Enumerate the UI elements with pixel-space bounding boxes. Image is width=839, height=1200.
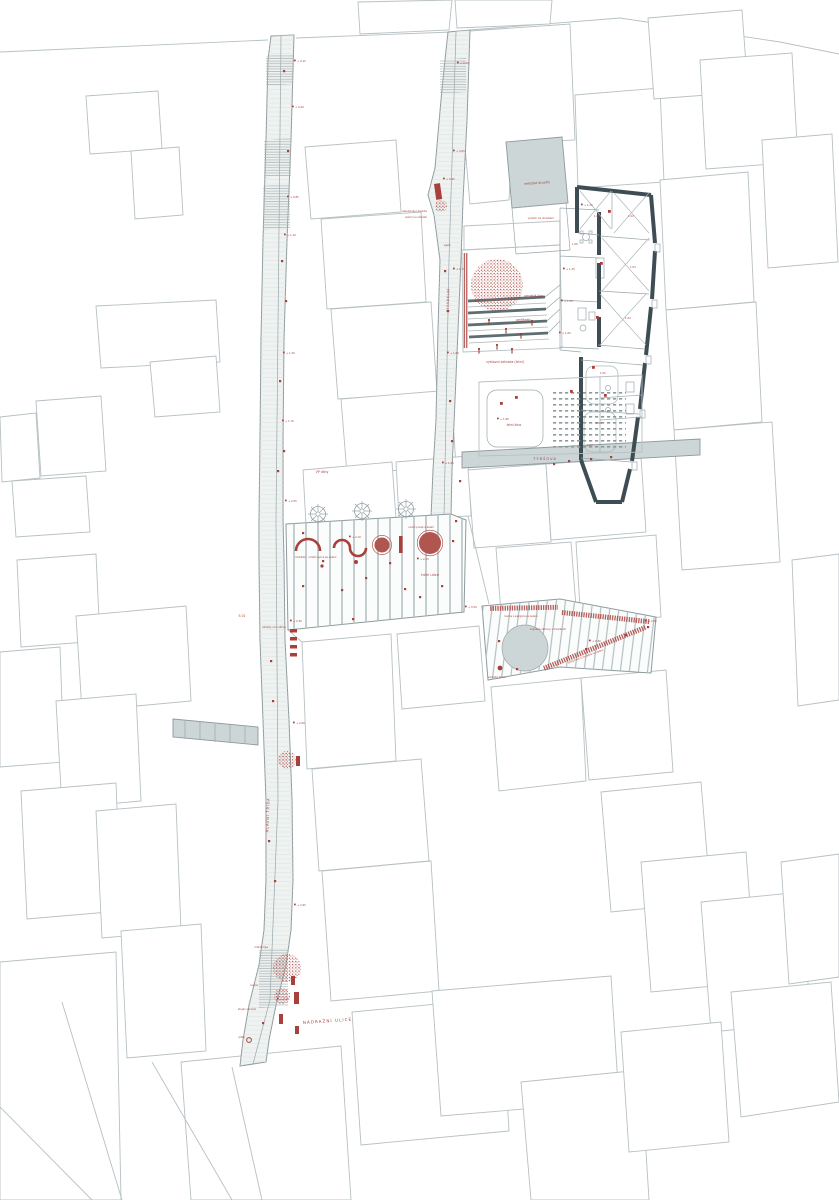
elev-marker: + 1,10: [287, 233, 296, 237]
elev-marker: + 0,65: [456, 149, 465, 153]
elev-marker: + 2,30: [293, 619, 302, 623]
elev-marker: + 0,95: [446, 177, 455, 181]
behind-theatre-label: prostor za divadlem: [528, 216, 554, 220]
elev-marker: + 2,15: [420, 557, 429, 561]
courtyard: [479, 375, 642, 456]
elev-marker: + 1,80: [500, 417, 509, 421]
site-plan-sheet: městské divadlo prostor za divadlem záso…: [0, 0, 839, 1200]
theatre-building: [506, 137, 568, 208]
elev-marker: + 0,15: [297, 59, 306, 63]
room-tag: 1.02: [628, 214, 634, 218]
elev-marker: + 0,50: [468, 605, 477, 609]
garden-rows: [462, 245, 562, 354]
elev-marker: + 2,95: [297, 903, 306, 907]
elev-marker: + 1,70: [285, 419, 294, 423]
elev-marker: + 1,15: [456, 267, 465, 271]
elev-marker: + 0,20: [460, 61, 469, 65]
elev-marker: + 2,40: [592, 639, 601, 643]
elev-marker: + 2,60: [296, 721, 305, 725]
room-tag: 1.08: [572, 242, 578, 246]
vp-label: VP dílny: [316, 470, 329, 474]
entry-label: vjezd: [444, 243, 451, 247]
summer-cinema-label: letní kino: [507, 423, 522, 427]
elev-marker: + 1,65: [562, 331, 571, 335]
station-street-label: NÁDRAŽNÍ ULICE: [303, 1017, 353, 1025]
room-tag: 1.01: [594, 214, 600, 218]
mature-tree-label: vzrostlý strom: [488, 675, 507, 679]
bike-rack-label: stojan na kola: [238, 1007, 257, 1011]
elev-marker: + 1,35: [566, 267, 575, 271]
site-plan-drawing: městské divadlo prostor za divadlem záso…: [0, 0, 839, 1200]
elev-marker: + 1,25: [584, 203, 593, 207]
raised-beds-label: zvýšené záhony s trvalkami: [530, 627, 566, 631]
market-street-label: tržní ulice: [421, 573, 439, 577]
plaza-furniture-label: mobiliář – vlnité lavice se zelení: [295, 555, 337, 559]
elev-marker: + 0,85: [290, 195, 299, 199]
planters-label: nádoby na květiny: [262, 625, 287, 629]
side-street-name: DIVADELNÍ: [445, 288, 451, 312]
elev-marker: + 2,05: [288, 499, 297, 503]
elev-marker: + 2,55: [648, 619, 657, 623]
pergola-bench-label: lavice s pergolou a zelení: [505, 614, 538, 618]
water-feature-label: vodní prvek a zeleň: [408, 525, 434, 529]
elev-marker: + 1,50: [564, 299, 573, 303]
elev-marker: + 0,40: [295, 105, 304, 109]
bench-label: lavice: [250, 983, 258, 987]
elev-marker: + 1,95: [445, 461, 454, 465]
tyrsova-label: TYRŠOVA: [532, 456, 557, 461]
linden-tree-crown: [471, 259, 523, 311]
elev-marker: + 1,60: [450, 351, 459, 355]
fountain-label: pítko: [239, 1035, 246, 1039]
s01-label: S 01: [238, 614, 245, 618]
room-tag: 1.04: [625, 316, 631, 320]
plaza-layer: [286, 499, 466, 630]
exhibition-garden-label: výstavní zahrada (letní): [486, 360, 524, 364]
room-tag: 1.03: [630, 265, 636, 269]
room-tag: 1.07: [587, 443, 593, 447]
supply-note-2: vjezd na náměstí: [405, 215, 427, 219]
young-linden-label: mladá lípa: [254, 945, 268, 949]
elev-marker: + 2,10: [352, 535, 361, 539]
elev-marker: + 3,20: [280, 997, 289, 1001]
linden-label: vzrostlá lípa: [524, 294, 543, 298]
market-tree-canopy: [502, 625, 548, 671]
room-tag: 1.06: [596, 421, 602, 425]
amphitheatre-label: amfiteátr: [516, 318, 531, 322]
supply-note-1: zásobování divadla: [402, 209, 427, 213]
room-tag: 1.05: [600, 371, 606, 375]
elev-marker: + 1,45: [286, 351, 295, 355]
